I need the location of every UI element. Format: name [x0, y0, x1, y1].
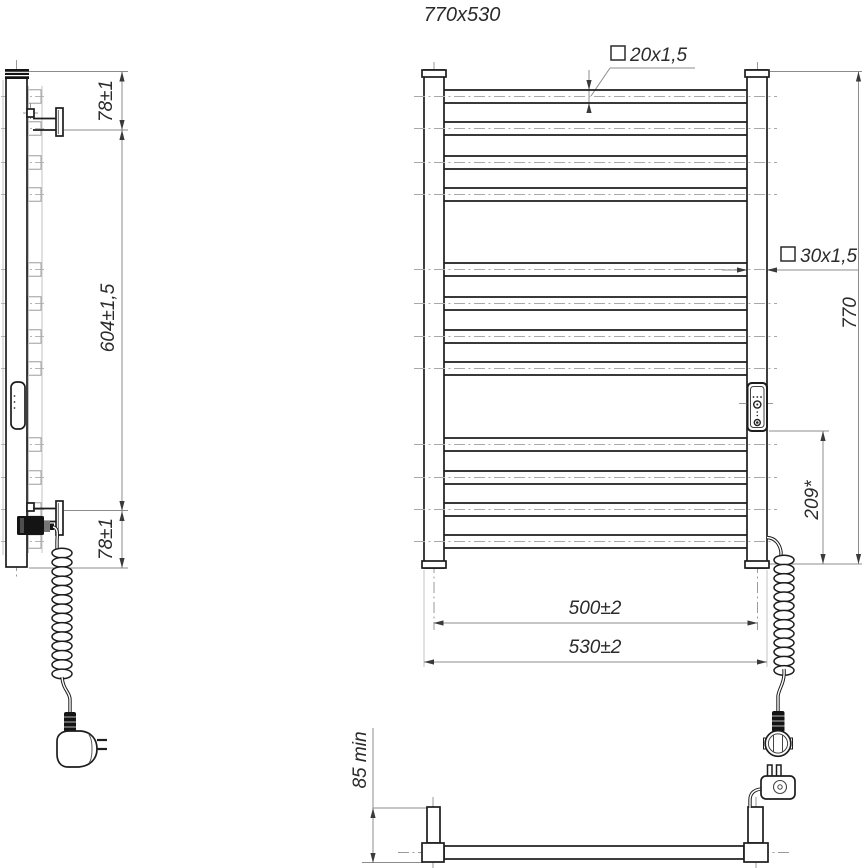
height-dimension-label: 770	[840, 297, 861, 329]
arrowhead-icon	[370, 808, 375, 818]
square-section-icon	[611, 46, 625, 60]
arrowhead-icon	[119, 72, 124, 82]
arrowhead-icon	[856, 554, 861, 564]
coil-loop	[774, 555, 794, 565]
overall-width-dimension-label: 530±2	[569, 637, 622, 658]
left-post-bottom-cap	[422, 561, 446, 568]
coil-loop	[774, 610, 794, 620]
arrowhead-icon	[119, 130, 124, 140]
coil-loop	[52, 651, 72, 661]
mounting-width-dimension-label: 500±2	[569, 598, 622, 619]
power-cord-side	[52, 527, 107, 767]
arrowhead-icon	[820, 431, 825, 441]
right-post	[747, 70, 767, 568]
coil-loop	[52, 641, 72, 651]
bottom-rung-plan	[444, 846, 744, 859]
arrowhead-icon	[767, 267, 777, 272]
bracket-spacing-label: 604±1,5	[98, 283, 119, 352]
coil-loop	[52, 604, 72, 614]
strain-relief	[64, 712, 76, 732]
controller-side-profile	[11, 382, 25, 429]
arrowhead-icon	[119, 558, 124, 568]
coil-loop	[774, 656, 794, 666]
coil-loop	[52, 660, 72, 670]
post-side-profile	[6, 70, 27, 567]
mains-plug-side	[57, 731, 107, 767]
arrowhead-icon	[370, 853, 375, 863]
post-top-cap-hatched	[5, 69, 29, 79]
top-bracket-offset-label: 78±1	[96, 80, 117, 122]
coil-loop	[774, 647, 794, 657]
coil-loop	[774, 583, 794, 593]
arrowhead-icon	[424, 659, 434, 664]
coil-loop	[52, 632, 72, 642]
arrowhead-icon	[586, 103, 591, 113]
coil-loop	[774, 620, 794, 630]
rungs	[414, 90, 777, 548]
coil-loop	[52, 558, 72, 568]
controller-front	[739, 383, 773, 431]
coil-loop	[774, 592, 794, 602]
arrowhead-icon	[737, 267, 747, 272]
arrowhead-icon	[586, 80, 591, 90]
arrowhead-icon	[119, 511, 124, 521]
coil-loop	[52, 576, 72, 586]
coiled-cable	[774, 555, 794, 675]
coil-loop	[774, 629, 794, 639]
mains-plug-top-view	[750, 765, 795, 808]
side-view	[1, 60, 107, 767]
arrowhead-icon	[434, 620, 444, 625]
left-post-top-cap	[422, 70, 446, 77]
bottom-view	[398, 765, 795, 868]
coiled-cable	[52, 548, 72, 679]
right-post-bottom-cap	[745, 561, 769, 568]
coil-loop	[52, 613, 72, 623]
arrowhead-icon	[820, 554, 825, 564]
coil-loop	[52, 623, 72, 633]
left-corner-junction	[422, 843, 444, 862]
arrowhead-icon	[119, 120, 124, 130]
coil-loop	[774, 564, 794, 574]
towel-rail-drawing-canvas: 770x530 20x1,5 30x1,5 770 209* 500±2 530…	[0, 0, 868, 868]
wall-clearance-label: 85 min	[350, 731, 371, 788]
coil-loop	[774, 601, 794, 611]
technical-drawing: 770x530 20x1,5 30x1,5 770 209* 500±2 530…	[0, 0, 868, 868]
left-post	[424, 70, 444, 568]
coil-loop	[52, 548, 72, 558]
arrowhead-icon	[748, 620, 758, 625]
post-section-label: 30x1,5	[800, 246, 857, 267]
coil-loop	[52, 567, 72, 577]
coil-loop	[774, 574, 794, 584]
right-corner-junction	[744, 843, 768, 862]
heating-element	[17, 516, 54, 535]
rung-section-label: 20x1,5	[629, 45, 687, 66]
top-wall-bracket	[23, 103, 63, 136]
arrowhead-icon	[856, 72, 861, 82]
coil-loop	[52, 595, 72, 605]
coil-loop	[774, 638, 794, 648]
square-section-icon	[781, 247, 795, 261]
right-post-top-cap	[745, 70, 769, 77]
arrowhead-icon	[757, 659, 767, 664]
left-bracket-stub	[427, 807, 440, 843]
power-cord-front	[764, 538, 795, 757]
strain-relief	[772, 711, 785, 732]
mains-plug-end-view	[764, 731, 793, 757]
page-title: 770x530	[424, 4, 501, 26]
heater-housing	[748, 807, 763, 843]
arrowhead-icon	[119, 501, 124, 511]
heater-offset-dimension-label: 209*	[802, 480, 823, 521]
bottom-bracket-offset-label: 78±1	[96, 518, 117, 560]
coil-loop	[52, 585, 72, 595]
